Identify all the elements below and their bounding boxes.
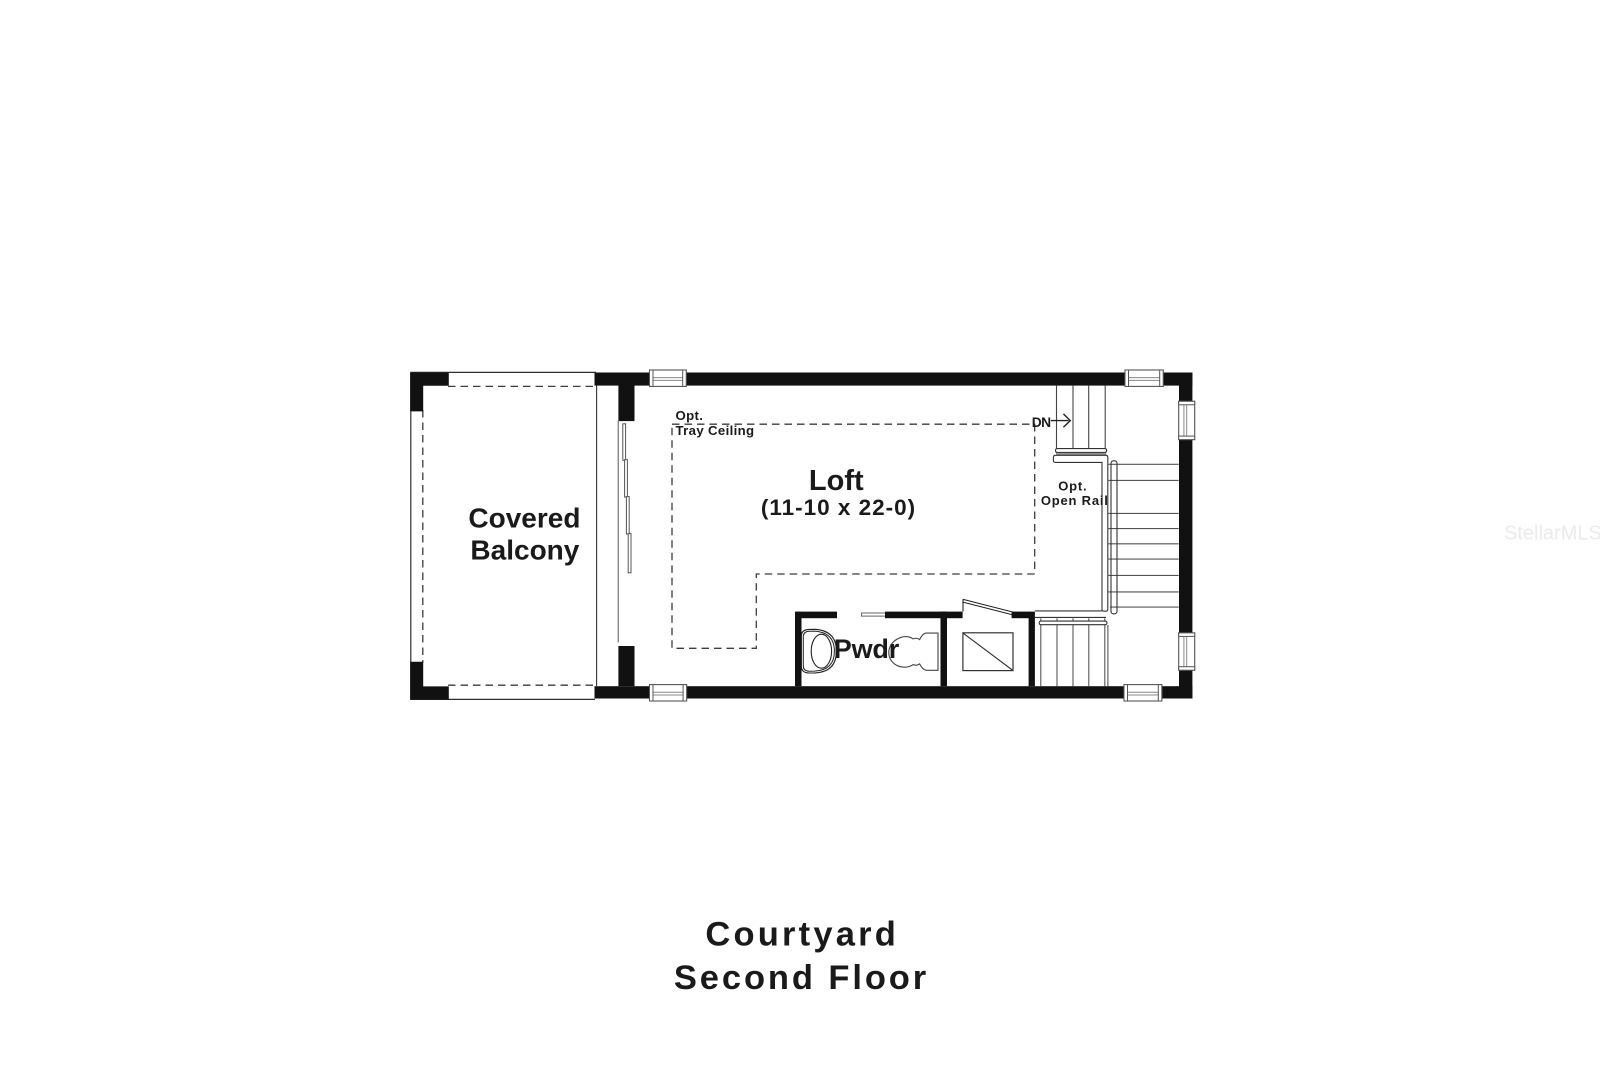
svg-text:(11-10 x 22-0): (11-10 x 22-0) bbox=[761, 495, 916, 520]
svg-text:Open Rail: Open Rail bbox=[1041, 493, 1109, 508]
svg-text:Second Floor: Second Floor bbox=[674, 959, 929, 997]
svg-text:Loft: Loft bbox=[809, 465, 864, 497]
svg-text:Courtyard: Courtyard bbox=[705, 915, 899, 953]
svg-text:StellarMLS: StellarMLS bbox=[1504, 523, 1600, 545]
svg-text:Balcony: Balcony bbox=[470, 535, 579, 566]
svg-text:Covered: Covered bbox=[468, 503, 580, 534]
svg-text:Opt.: Opt. bbox=[1058, 479, 1087, 494]
svg-text:Tray Ceiling: Tray Ceiling bbox=[676, 423, 755, 438]
svg-text:Pwdr: Pwdr bbox=[834, 634, 900, 664]
svg-text:DN: DN bbox=[1032, 415, 1051, 430]
svg-text:Opt.: Opt. bbox=[676, 408, 704, 423]
